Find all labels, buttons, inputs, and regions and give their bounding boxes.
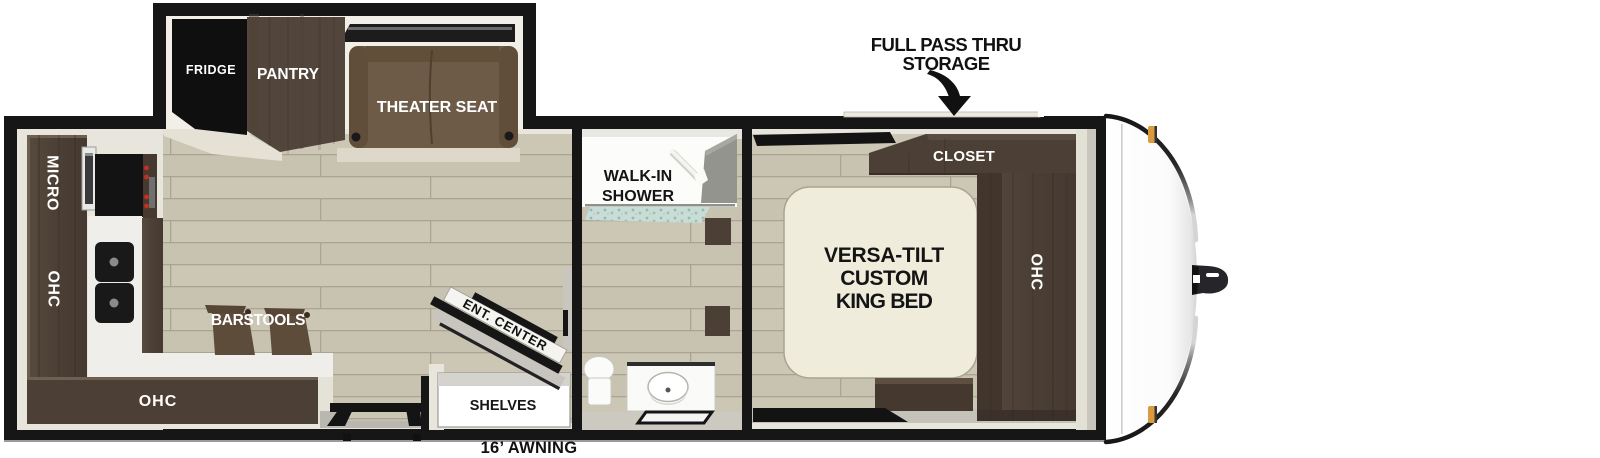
svg-text:FRIDGE: FRIDGE xyxy=(186,63,236,77)
svg-text:BARSTOOLS: BARSTOOLS xyxy=(211,312,305,329)
svg-text:SHELVES: SHELVES xyxy=(470,398,537,414)
svg-text:OHC: OHC xyxy=(1028,253,1045,290)
svg-text:CUSTOM: CUSTOM xyxy=(840,267,928,290)
svg-text:OHC: OHC xyxy=(139,393,178,410)
svg-text:16’ AWNING: 16’ AWNING xyxy=(481,439,578,453)
svg-text:MICRO: MICRO xyxy=(44,155,61,211)
svg-text:PANTRY: PANTRY xyxy=(257,66,320,83)
svg-text:FULL PASS THRU: FULL PASS THRU xyxy=(871,34,1022,55)
svg-text:STORAGE: STORAGE xyxy=(903,53,990,74)
svg-text:OHC: OHC xyxy=(45,270,62,307)
svg-text:VERSA-TILT: VERSA-TILT xyxy=(824,244,944,267)
svg-text:SHOWER: SHOWER xyxy=(602,188,674,205)
svg-text:WALK-IN: WALK-IN xyxy=(604,168,672,185)
svg-text:THEATER SEAT: THEATER SEAT xyxy=(377,99,498,116)
svg-text:CLOSET: CLOSET xyxy=(933,148,995,165)
svg-text:KING BED: KING BED xyxy=(836,290,933,313)
